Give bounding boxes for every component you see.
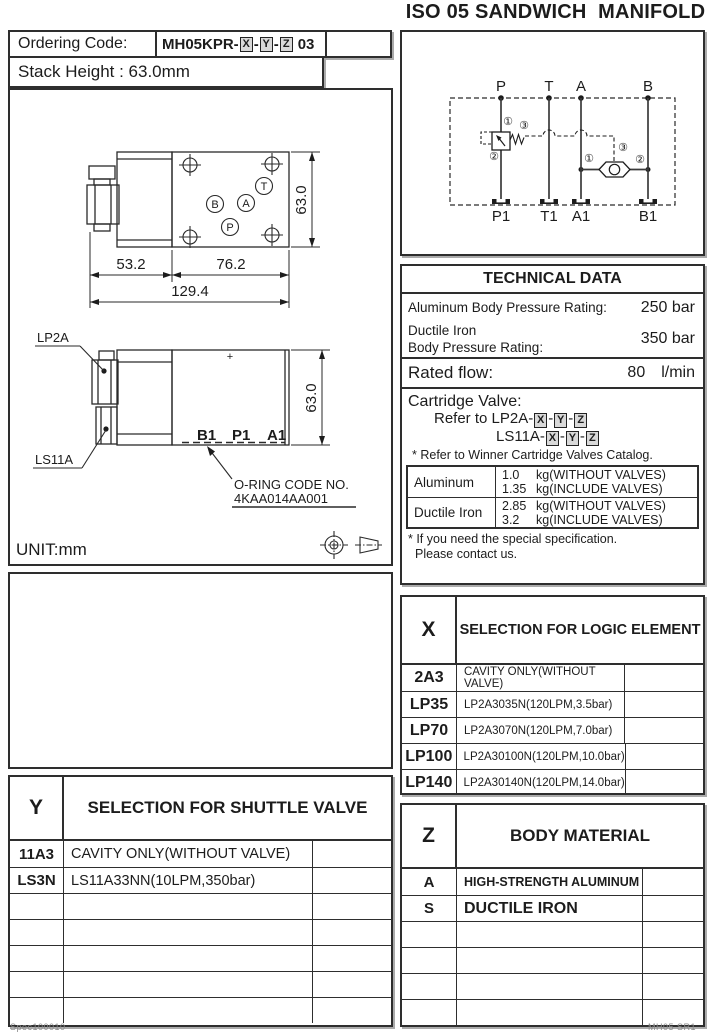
- weight-num: 3.2: [502, 513, 536, 527]
- relief-callout-1: ①: [503, 116, 513, 128]
- x-row-extra: [626, 770, 703, 795]
- relief-callout-2: ②: [489, 151, 499, 163]
- schematic-port-a: A: [576, 78, 586, 95]
- schematic-port-p: P: [496, 78, 506, 95]
- x-row-code: LP35: [402, 692, 457, 717]
- x-row-extra: [625, 718, 703, 743]
- x-row-extra: [626, 744, 703, 769]
- rated-flow-unit: l/min: [661, 364, 697, 382]
- table-row: LP35 LP2A3035N(120LPM,3.5bar): [402, 691, 703, 717]
- oring-note-line2: 4KAA014AA001: [234, 491, 328, 506]
- code-x-box: X: [534, 413, 547, 428]
- cartridge-catalog-note: * Refer to Winner Cartridge Valves Catal…: [402, 447, 703, 465]
- datasheet-page: { "page": { "title": "ISO 05 SANDWICH MA…: [0, 0, 711, 1027]
- schematic-port-p1: P1: [492, 208, 510, 225]
- dimension-drawing: B A P T 53.2 76.2 129.4: [10, 90, 391, 564]
- ordering-code-row: Ordering Code: MH05KPR-X-Y-Z03: [8, 30, 392, 58]
- z-row-desc: HIGH-STRENGTH ALUMINUM: [457, 869, 643, 895]
- x-row-desc: LP2A30100N(120LPM,10.0bar): [457, 744, 626, 769]
- relief-callout-3: ③: [519, 120, 529, 132]
- y-table-header: Y SELECTION FOR SHUTTLE VALVE: [10, 777, 391, 841]
- code-sep: -: [580, 428, 585, 445]
- x-row-extra: [625, 692, 703, 717]
- top-view-body: [87, 152, 289, 247]
- weight-table: Aluminum 1.0kg(WITHOUT VALVES) 1.35kg(IN…: [406, 465, 699, 529]
- shuttle-valve-symbol: [599, 162, 630, 177]
- weight-num: 1.0: [502, 468, 536, 482]
- technical-data-title: TECHNICAL DATA: [402, 266, 703, 294]
- schematic-port-b1: B1: [639, 208, 657, 225]
- dimension-drawing-box: B A P T 53.2 76.2 129.4: [8, 88, 393, 566]
- table-row: S DUCTILE IRON: [402, 895, 703, 921]
- x-row-desc: LP2A3070N(120LPM,7.0bar): [457, 718, 625, 743]
- port-a-label: A: [242, 198, 250, 210]
- shuttle-callout-1: ①: [584, 153, 594, 165]
- schematic-port-t: T: [544, 78, 553, 95]
- ductile-label-line2: Body Pressure Rating:: [408, 339, 543, 356]
- ductile-pressure-row: Ductile Iron Body Pressure Rating: 350 b…: [402, 321, 703, 359]
- hydraulic-schematic-box: P T A B P1 T1 A1 B1: [400, 30, 705, 256]
- technical-data-box: TECHNICAL DATA Aluminum Body Pressure Ra…: [400, 264, 705, 585]
- x-table-code-header: X: [402, 597, 457, 663]
- weight-text: kg(WITHOUT VALVES): [536, 468, 666, 482]
- y-row-code: 11A3: [10, 841, 64, 867]
- notes-empty-panel: [8, 572, 393, 769]
- hydraulic-schematic: P T A B P1 T1 A1 B1: [402, 32, 703, 254]
- x-row-code: LP140: [402, 770, 457, 795]
- ordering-code-value: MH05KPR-X-Y-Z03: [157, 32, 327, 56]
- pilot-line: [525, 130, 614, 162]
- schematic-port-t1: T1: [540, 208, 558, 225]
- footer-left-code: Spec100010: [10, 1022, 66, 1032]
- code-y-box: Y: [554, 413, 567, 428]
- table-row: LS3N LS11A33NN(10LPM,350bar): [10, 867, 391, 893]
- weight-text: kg(WITHOUT VALVES): [536, 499, 666, 513]
- y-row-extra: [313, 841, 391, 867]
- x-row-code: LP100: [402, 744, 457, 769]
- weight-num: 2.85: [502, 499, 536, 513]
- body-plus-mark: +: [227, 351, 233, 363]
- top-view-port-labels: B A P T: [207, 178, 273, 236]
- relief-valve-symbol: [481, 132, 524, 150]
- port-t-label: T: [261, 181, 268, 193]
- schematic-port-b: B: [643, 78, 653, 95]
- table-row-empty: [10, 971, 391, 997]
- ductile-label-line1: Ductile Iron: [408, 322, 543, 339]
- code-sep: -: [568, 410, 573, 427]
- z-row-code: A: [402, 869, 457, 895]
- table-row-empty: [10, 893, 391, 919]
- z-row-extra: [643, 896, 703, 921]
- rated-flow-label: Rated flow:: [408, 363, 493, 383]
- cartridge-ref-ls11a: LS11A-X-Y-Z: [408, 428, 697, 446]
- special-spec-note-line1: * If you need the special specification.: [408, 532, 697, 547]
- dim-63-front: 63.0: [303, 383, 320, 412]
- code-prefix: MH05KPR-: [162, 36, 239, 53]
- x-row-code: 2A3: [402, 665, 457, 691]
- x-row-desc: LP2A30140N(120LPM,14.0bar): [457, 770, 626, 795]
- code-y-box: Y: [566, 431, 579, 446]
- ordering-code-label: Ordering Code:: [10, 32, 157, 56]
- shuttle-valve-selection-table: Y SELECTION FOR SHUTTLE VALVE 11A3 CAVIT…: [8, 775, 393, 1027]
- front-a1-label: A1: [267, 427, 286, 444]
- cartridge-ref-lp2a-prefix: Refer to LP2A-: [434, 410, 533, 427]
- code-sep: -: [548, 410, 553, 427]
- code-x-box: X: [546, 431, 559, 446]
- projection-symbol-icon: [320, 531, 382, 559]
- body-material-table: Z BODY MATERIAL A HIGH-STRENGTH ALUMINUM…: [400, 803, 705, 1027]
- dim-129-4: 129.4: [171, 283, 209, 300]
- z-table-header: Z BODY MATERIAL: [402, 805, 703, 869]
- table-row: A HIGH-STRENGTH ALUMINUM: [402, 869, 703, 895]
- z-table-code-header: Z: [402, 805, 457, 867]
- cartridge-valve-info: Cartridge Valve: Refer to LP2A-X-Y-Z LS1…: [402, 389, 703, 447]
- shuttle-callout-2: ②: [635, 154, 645, 166]
- z-row-extra: [643, 869, 703, 895]
- code-sep1: -: [254, 36, 259, 53]
- code-z-box: Z: [586, 431, 599, 446]
- x-row-code: LP70: [402, 718, 457, 743]
- table-row: LP70 LP2A3070N(120LPM,7.0bar): [402, 717, 703, 743]
- code-sep: -: [560, 428, 565, 445]
- weight-material: Ductile Iron: [408, 498, 496, 527]
- rated-flow-row: Rated flow: 80 l/min: [402, 359, 703, 389]
- y-row-desc: LS11A33NN(10LPM,350bar): [64, 868, 313, 893]
- dim-63-top: 63.0: [293, 185, 310, 214]
- aluminum-pressure-label: Aluminum Body Pressure Rating:: [408, 300, 607, 315]
- port-seats: [492, 199, 657, 204]
- ls11a-label: LS11A: [35, 452, 73, 467]
- table-row-empty: [402, 973, 703, 999]
- oring-note: O-RING CODE NO. 4KAA014AA001: [207, 446, 356, 507]
- front-b1-label: B1: [197, 427, 216, 444]
- footer-right-code: MH05 SR1: [648, 1022, 696, 1032]
- weight-num: 1.35: [502, 482, 536, 496]
- aluminum-pressure-row: Aluminum Body Pressure Rating: 250 bar: [402, 294, 703, 321]
- oring-note-line1: O-RING CODE NO.: [234, 477, 349, 492]
- rated-flow-value: 80: [627, 364, 645, 382]
- table-row: 11A3 CAVITY ONLY(WITHOUT VALVE): [10, 841, 391, 867]
- table-row-empty: [10, 945, 391, 971]
- x-row-desc: LP2A3035N(120LPM,3.5bar): [457, 692, 625, 717]
- x-table-title: SELECTION FOR LOGIC ELEMENT: [457, 597, 703, 663]
- table-row-empty: [10, 919, 391, 945]
- table-row: LP140 LP2A30140N(120LPM,14.0bar): [402, 769, 703, 795]
- weight-row-aluminum: Aluminum 1.0kg(WITHOUT VALVES) 1.35kg(IN…: [408, 467, 697, 497]
- code-z-box: Z: [280, 37, 293, 52]
- weight-text: kg(INCLUDE VALVES): [536, 513, 663, 527]
- y-row-extra: [313, 868, 391, 893]
- schematic-envelope: [450, 98, 675, 205]
- cartridge-valve-heading: Cartridge Valve:: [408, 393, 697, 410]
- port-p-label: P: [226, 222, 233, 234]
- page-title: ISO 05 SANDWICH MANIFOLD: [400, 1, 711, 24]
- special-spec-note: * If you need the special specification.…: [402, 529, 703, 562]
- unit-label: UNIT:mm: [16, 540, 87, 559]
- code-sep2: -: [274, 36, 279, 53]
- front-view-body: [92, 350, 289, 445]
- logic-element-selection-table: X SELECTION FOR LOGIC ELEMENT 2A3 CAVITY…: [400, 595, 705, 795]
- junction-dots: [498, 95, 651, 172]
- callout-numbers: ① ③ ② ① ③ ②: [489, 116, 645, 166]
- aluminum-pressure-value: 250 bar: [641, 299, 697, 317]
- weight-material: Aluminum: [408, 467, 496, 497]
- y-row-code: LS3N: [10, 868, 64, 893]
- code-y-box: Y: [260, 37, 273, 52]
- z-row-code: S: [402, 896, 457, 921]
- dim-53-2: 53.2: [116, 256, 145, 273]
- front-p1-label: P1: [232, 427, 250, 444]
- weight-row-ductile: Ductile Iron 2.85kg(WITHOUT VALVES) 3.2k…: [408, 497, 697, 527]
- code-x-box: X: [240, 37, 253, 52]
- z-table-title: BODY MATERIAL: [457, 805, 703, 867]
- table-row-empty: [402, 921, 703, 947]
- ordering-empty-cell: [327, 32, 390, 56]
- y-table-code-header: Y: [10, 777, 64, 839]
- table-row: 2A3 CAVITY ONLY(WITHOUT VALVE): [402, 665, 703, 691]
- cartridge-labels: LP2A LS11A: [33, 330, 106, 468]
- table-row-empty: [402, 947, 703, 973]
- stack-height-row: Stack Height : 63.0mm: [8, 58, 324, 88]
- code-suffix: 03: [298, 36, 315, 53]
- cartridge-ref-lp2a: Refer to LP2A-X-Y-Z: [408, 410, 697, 428]
- special-spec-note-line2: Please contact us.: [408, 547, 697, 562]
- x-row-extra: [625, 665, 703, 691]
- ductile-pressure-value: 350 bar: [641, 330, 697, 348]
- lp2a-label: LP2A: [37, 330, 69, 345]
- x-table-header: X SELECTION FOR LOGIC ELEMENT: [402, 597, 703, 665]
- z-row-desc: DUCTILE IRON: [457, 896, 643, 921]
- weight-text: kg(INCLUDE VALVES): [536, 482, 663, 496]
- x-row-desc: CAVITY ONLY(WITHOUT VALVE): [457, 665, 625, 691]
- table-row: LP100 LP2A30100N(120LPM,10.0bar): [402, 743, 703, 769]
- dim-76-2: 76.2: [216, 256, 245, 273]
- cartridge-ref-ls11a-prefix: LS11A-: [496, 428, 545, 445]
- y-table-title: SELECTION FOR SHUTTLE VALVE: [64, 777, 391, 839]
- y-row-desc: CAVITY ONLY(WITHOUT VALVE): [64, 841, 313, 867]
- table-row-empty: [10, 997, 391, 1023]
- port-b-label: B: [211, 199, 218, 211]
- schematic-port-a1: A1: [572, 208, 590, 225]
- shuttle-callout-3: ③: [618, 142, 628, 154]
- code-z-box: Z: [574, 413, 587, 428]
